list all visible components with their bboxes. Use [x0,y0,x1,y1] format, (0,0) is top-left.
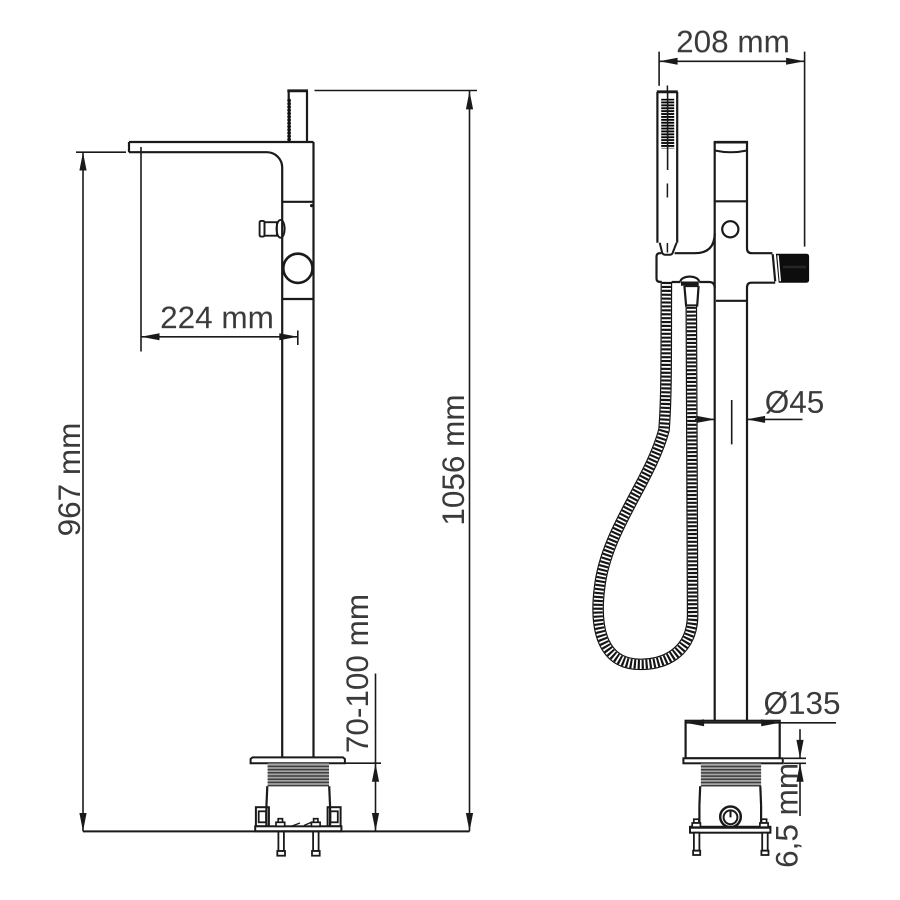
svg-text:Ø45: Ø45 [765,384,825,420]
svg-text:224 mm: 224 mm [160,299,274,335]
svg-text:Ø135: Ø135 [763,685,840,721]
svg-text:967 mm: 967 mm [51,423,87,537]
svg-text:70-100 mm: 70-100 mm [339,594,375,753]
svg-text:208 mm: 208 mm [676,23,790,59]
svg-text:6,5 mm: 6,5 mm [769,763,805,868]
svg-text:1056 mm: 1056 mm [435,394,471,525]
